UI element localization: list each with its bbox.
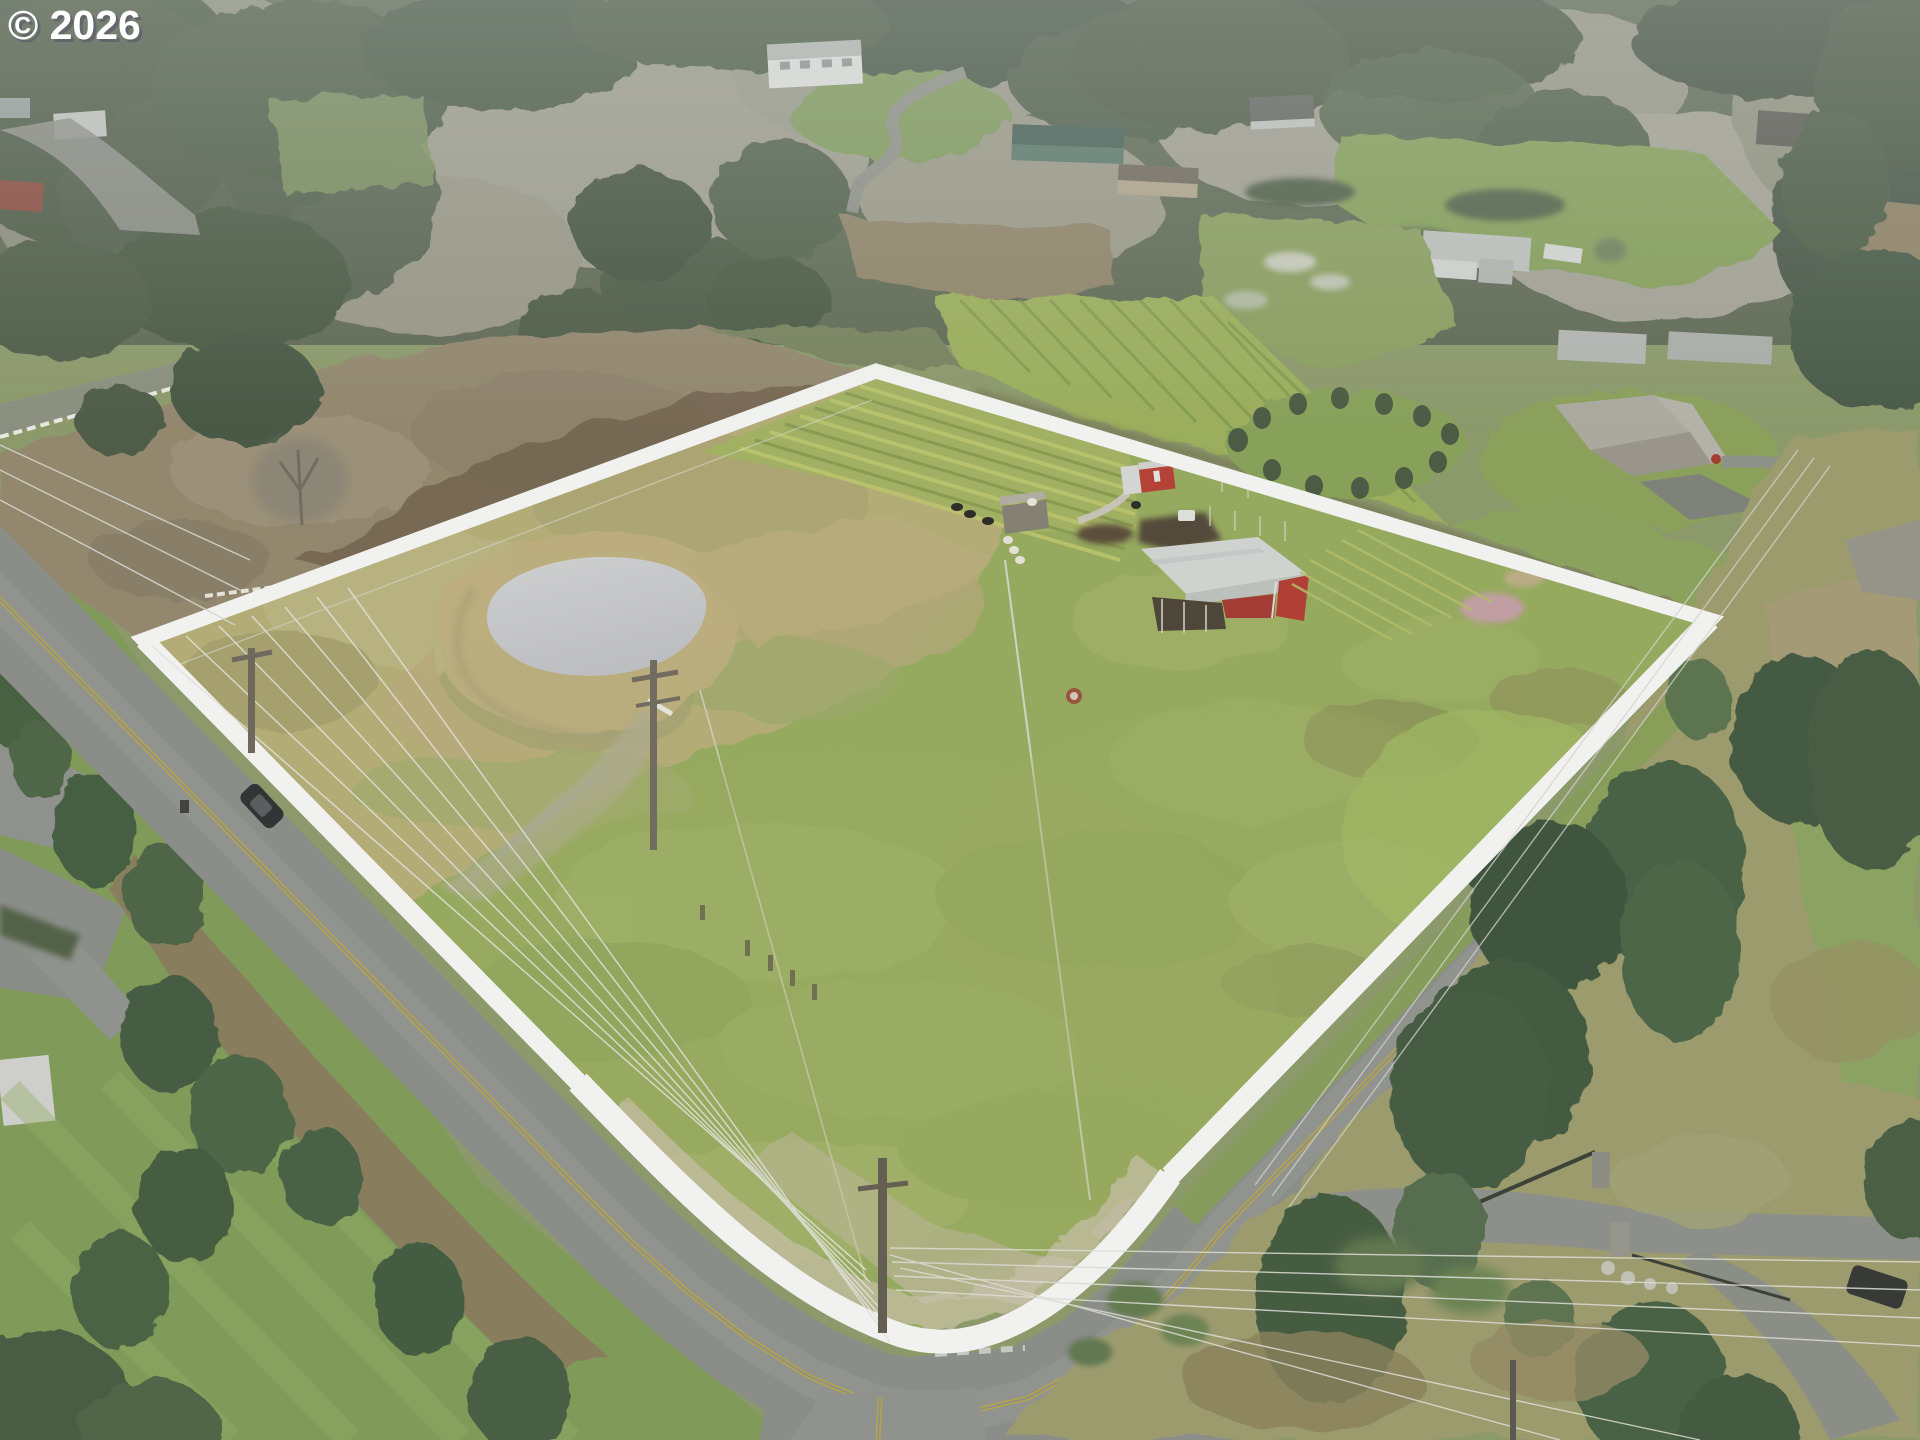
svg-text:© 2026: © 2026: [8, 2, 141, 48]
